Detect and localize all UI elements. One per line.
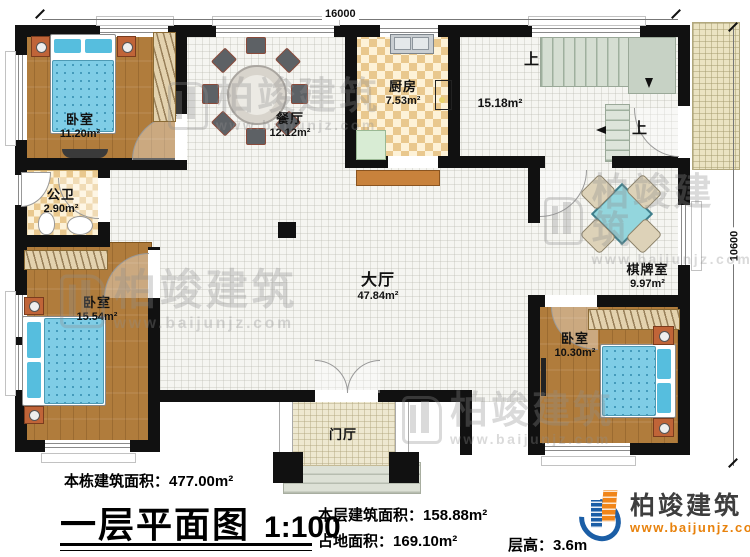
foyer-pier-right bbox=[389, 452, 419, 483]
floor-area-line: 本层建筑面积：158.88m² bbox=[318, 504, 487, 525]
window-sill bbox=[96, 16, 174, 26]
stair-flight-lower bbox=[605, 104, 630, 162]
logo-building-blue bbox=[591, 500, 602, 528]
footprint-value: 169.10m² bbox=[393, 533, 457, 550]
room-area: 2.90m² bbox=[30, 203, 92, 216]
window-left-bedroom1 bbox=[15, 55, 27, 140]
room-label-hall: 大厅 47.84m² bbox=[328, 272, 428, 303]
wardrobe-icon bbox=[24, 250, 108, 270]
room-area: 10.30m² bbox=[535, 347, 615, 360]
nightstand-icon bbox=[31, 36, 50, 57]
floor-area-label: 本层建筑面积： bbox=[318, 507, 423, 524]
window-top-dining bbox=[216, 25, 334, 37]
stove-burner bbox=[439, 97, 445, 103]
chair-icon bbox=[202, 84, 219, 104]
bathroom-sink-icon bbox=[67, 216, 93, 235]
nightstand-icon bbox=[24, 406, 44, 424]
dimension-line-top bbox=[42, 19, 678, 20]
stair-arrow-icon bbox=[596, 126, 606, 134]
door-gap-bathroom bbox=[98, 178, 110, 222]
room-name: 卧室 bbox=[535, 332, 615, 347]
fridge-icon bbox=[356, 130, 386, 160]
wall-hall-bottom-left bbox=[155, 390, 315, 402]
chair-icon bbox=[291, 84, 308, 104]
window-bottom-bedroom2 bbox=[45, 440, 130, 452]
plan-title-row: 一层平面图 1:100 bbox=[60, 496, 341, 548]
window-sill bbox=[541, 456, 636, 466]
door-gap-kitchen bbox=[388, 156, 438, 168]
building-area-label: 本栋建筑面积： bbox=[64, 473, 169, 490]
room-label-bedroom3: 卧室 10.30m² bbox=[535, 332, 615, 360]
title-underline-thin bbox=[60, 550, 312, 551]
room-label-kitchen: 厨房 7.53m² bbox=[372, 80, 434, 108]
window-right-chess bbox=[678, 205, 690, 265]
room-label-bedroom2: 卧室 15.54m² bbox=[52, 296, 142, 324]
window-sill bbox=[212, 16, 340, 26]
window-sill bbox=[528, 16, 646, 26]
company-url: www.baijunjz.com bbox=[630, 520, 750, 535]
dimension-right-label: 10600 bbox=[728, 228, 740, 265]
floor-height-label: 层高： bbox=[508, 537, 553, 554]
pillow bbox=[53, 38, 82, 54]
room-label-foyer: 门厅 bbox=[303, 428, 383, 443]
nightstand-icon bbox=[117, 36, 136, 57]
company-name: 柏竣建筑 bbox=[630, 493, 750, 519]
room-name: 棋牌室 bbox=[600, 263, 695, 278]
stove-icon bbox=[435, 80, 452, 110]
window-bottom-bedroom3 bbox=[545, 443, 630, 455]
room-name: 门厅 bbox=[303, 428, 383, 443]
company-logo: 柏竣建筑 www.baijunjz.com bbox=[580, 488, 750, 540]
tv-cabinet-icon bbox=[541, 358, 546, 396]
room-area: 7.53m² bbox=[372, 95, 434, 108]
room-name: 公卫 bbox=[30, 188, 92, 203]
wall-hall-bottom-right bbox=[378, 390, 460, 402]
rug-icon bbox=[62, 149, 108, 158]
pillow bbox=[84, 38, 113, 54]
pillow bbox=[26, 321, 42, 359]
stair-arrow-icon bbox=[645, 78, 653, 88]
room-name: 大厅 bbox=[328, 272, 428, 290]
kitchen-sink-basin bbox=[394, 37, 411, 50]
door-gap-bedroom3 bbox=[545, 295, 597, 307]
room-label-bathroom: 公卫 2.90m² bbox=[30, 188, 92, 216]
wall-bathroom-bedroom2 bbox=[15, 235, 110, 247]
room-name: 卧室 bbox=[52, 296, 142, 311]
room-area: 15.54m² bbox=[52, 311, 142, 324]
nightstand-icon bbox=[24, 297, 44, 315]
room-area: 12.12m² bbox=[250, 127, 330, 140]
room-area: 47.84m² bbox=[328, 290, 428, 303]
company-logo-icon bbox=[580, 488, 624, 540]
foyer-pier-left bbox=[273, 452, 303, 483]
pillow bbox=[656, 382, 672, 414]
console-table-icon bbox=[356, 170, 440, 186]
wall-stair-bottom-left bbox=[460, 156, 545, 168]
wall-chess-left-stub bbox=[528, 168, 540, 223]
room-name: 卧室 bbox=[30, 113, 130, 128]
room-area: 9.97m² bbox=[600, 278, 695, 291]
window-sill bbox=[5, 51, 16, 146]
room-label-chess: 棋牌室 9.97m² bbox=[600, 263, 695, 291]
column bbox=[278, 222, 296, 238]
stair-up-label-2: 上 bbox=[632, 117, 647, 138]
kitchen-sink-basin bbox=[412, 37, 429, 50]
room-name: 厨房 bbox=[372, 80, 434, 95]
logo-building-orange bbox=[601, 490, 618, 522]
room-label-dining: 餐厅 12.12m² bbox=[250, 112, 330, 140]
stair-up-label-1: 上 bbox=[524, 48, 539, 69]
window-sill bbox=[691, 201, 702, 271]
plan-title: 一层平面图 bbox=[60, 496, 250, 548]
footprint-label: 占地面积： bbox=[318, 533, 393, 550]
floor-area-value: 158.88m² bbox=[423, 507, 487, 524]
room-area: 15.18m² bbox=[460, 97, 540, 111]
floor-plan-canvas: 卧室 11.20m² 餐厅 12.12m² 厨房 7.53m² 15.18m² … bbox=[0, 0, 750, 557]
window-sill bbox=[41, 453, 136, 463]
room-name: 餐厅 bbox=[250, 112, 330, 127]
building-area-value: 477.00m² bbox=[169, 473, 233, 490]
dimension-tick bbox=[671, 9, 681, 19]
wall-bedroom3-left bbox=[528, 295, 540, 455]
wall-foyer-right bbox=[460, 390, 472, 455]
window-top-stairhall bbox=[532, 25, 640, 37]
title-underline-thick bbox=[60, 543, 312, 546]
stair-flight-upper bbox=[540, 37, 630, 87]
dimension-top-label: 16000 bbox=[322, 8, 359, 20]
nightstand-icon bbox=[653, 326, 674, 345]
wardrobe-icon bbox=[153, 32, 176, 122]
nightstand-icon bbox=[653, 418, 674, 437]
window-sill bbox=[5, 291, 16, 396]
room-area: 11.20m² bbox=[30, 128, 130, 141]
floor-height-line: 层高：3.6m bbox=[508, 534, 587, 555]
pillow bbox=[656, 348, 672, 380]
dimension-tick bbox=[35, 9, 45, 19]
pillow bbox=[26, 361, 42, 399]
door-gap-bedroom2 bbox=[148, 250, 160, 298]
room-label-stairhall: 15.18m² bbox=[460, 97, 540, 111]
footprint-line: 占地面积：169.10m² bbox=[318, 530, 457, 551]
room-label-bedroom1: 卧室 11.20m² bbox=[30, 113, 130, 141]
door-gap-porch bbox=[678, 106, 690, 158]
chair-icon bbox=[246, 37, 266, 54]
building-area-line: 本栋建筑面积：477.00m² bbox=[64, 470, 233, 491]
duvet bbox=[44, 318, 104, 404]
